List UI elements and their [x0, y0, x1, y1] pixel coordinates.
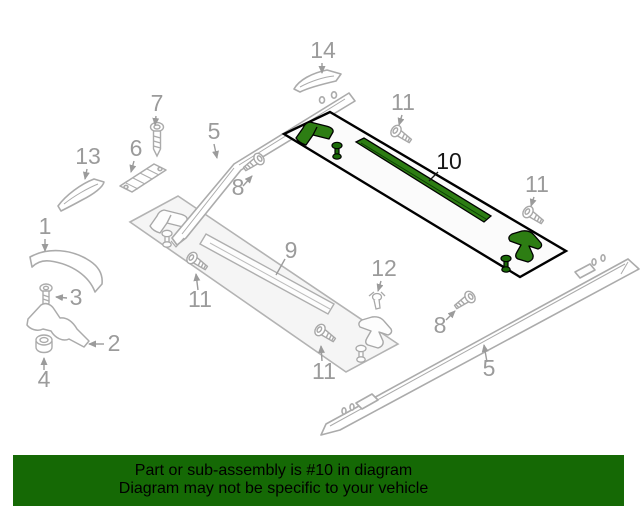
part-4-nut — [36, 335, 52, 353]
part-7-screw — [151, 123, 164, 157]
banner-line2: Diagram may not be specific to your vehi… — [13, 480, 534, 498]
callout-14: 14 — [310, 37, 336, 63]
part-14-rail-cap — [294, 70, 341, 92]
callout-12: 12 — [371, 255, 397, 281]
part-6-slide-pad — [120, 164, 166, 192]
callout-6: 6 — [130, 135, 143, 161]
callout-5-right: 5 — [483, 355, 496, 381]
part-13-finisher — [58, 179, 104, 211]
part-12-clip — [369, 292, 385, 309]
part-8-screw-right — [452, 289, 477, 312]
callout-3: 3 — [70, 284, 83, 310]
callout-5-left: 5 — [208, 118, 221, 144]
parts-diagram-page: 14 7 5 6 13 8 1 3 2 4 9 11 11 11 11 12 8… — [0, 0, 640, 512]
callout-11-right: 11 — [525, 171, 549, 197]
callout-11-bottom: 11 — [312, 358, 336, 384]
callout-1: 1 — [39, 213, 52, 239]
highlight-banner: Part or sub-assembly is #10 in diagram D… — [13, 455, 624, 506]
highlighted-part-10-group: 10 — [284, 112, 566, 277]
callout-4: 4 — [38, 366, 51, 392]
banner-line1: Part or sub-assembly is #10 in diagram — [13, 462, 534, 480]
part-11-screw-top — [389, 123, 414, 146]
part-11-screw-right — [521, 204, 546, 227]
callout-8-right: 8 — [434, 312, 447, 338]
callout-11-top: 11 — [391, 89, 415, 115]
callout-11-middle: 11 — [188, 286, 212, 312]
callout-10-highlighted: 10 — [436, 148, 462, 174]
part-9-crossbar-panel — [130, 196, 398, 372]
parts-diagram-image[interactable]: 14 7 5 6 13 8 1 3 2 4 9 11 11 11 11 12 8… — [0, 0, 640, 455]
callout-7: 7 — [151, 90, 164, 116]
callout-8-left: 8 — [232, 174, 245, 200]
callout-9: 9 — [285, 237, 298, 263]
callout-13: 13 — [75, 143, 101, 169]
callout-2: 2 — [108, 330, 121, 356]
